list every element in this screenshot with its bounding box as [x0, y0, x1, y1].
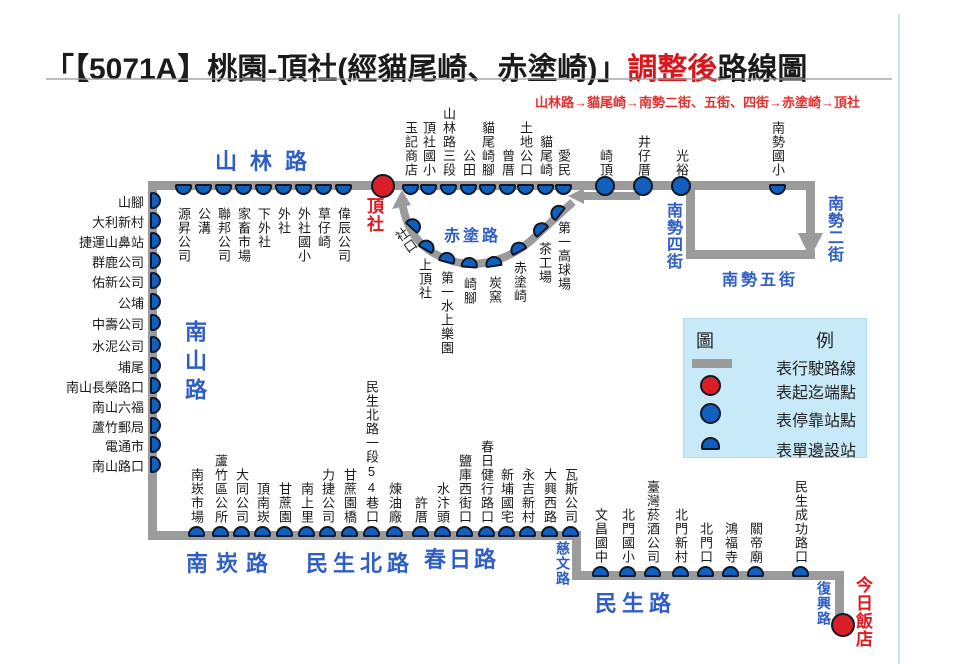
stop-label: 崎腳 — [462, 277, 476, 305]
road-label: 山林路 — [215, 144, 320, 176]
stop-marker — [412, 526, 429, 537]
terminal-marker — [371, 174, 395, 198]
stop-label: 土地公口 — [518, 121, 532, 177]
stop-marker — [276, 526, 293, 537]
stop-label: 新埔國宅 — [499, 468, 513, 524]
stop-marker — [498, 526, 515, 537]
stop-marker — [233, 526, 250, 537]
stop-label: 大興西路 — [542, 468, 556, 524]
stop-marker — [592, 566, 609, 577]
stop-label: 蘆竹郵局 — [92, 417, 144, 436]
terminal-marker — [831, 613, 855, 637]
stop-label: 外社 — [276, 207, 290, 235]
stop-marker — [188, 526, 205, 537]
stop-label: 北門新村 — [673, 508, 687, 564]
stop-label: 源昇公司 — [176, 207, 190, 263]
stop-label: 外社國小 — [296, 207, 310, 263]
stop-label: 上頂社 — [417, 258, 431, 300]
stop-label: 南山六福 — [92, 397, 144, 416]
stop-label: 炭窯 — [487, 276, 501, 304]
stop-label: 公田 — [461, 149, 475, 177]
stop-marker — [672, 566, 689, 577]
stop-label: 公溝 — [196, 207, 210, 235]
stop-label: 瓦斯公司 — [563, 468, 577, 524]
stop-label: 頂南崁 — [255, 482, 269, 524]
stop-label: 第一高球場 — [556, 221, 570, 291]
stop-marker — [541, 526, 558, 537]
stop-label: 甘蔗園 — [277, 482, 291, 524]
road-label: 南勢五街 — [722, 266, 798, 290]
stop-label: 水汴頭 — [435, 482, 449, 524]
stop-label: 貓尾崎 — [538, 135, 552, 177]
stop-marker — [722, 566, 739, 577]
stop-label: 第一水上樂園 — [439, 271, 453, 355]
road-label: 民生北路 — [306, 546, 414, 578]
stop-label: 貓尾崎腳 — [480, 121, 494, 177]
stop-label: 文昌國中 — [593, 508, 607, 564]
stop-label: 下外社 — [256, 207, 270, 249]
stop-label: 關帝廟 — [748, 522, 762, 564]
stop-label: 茶工場 — [537, 242, 551, 284]
stop-label: 崎頂 — [598, 149, 612, 177]
road-label: 南崁路 — [186, 546, 276, 578]
stop-label: 南上里 — [299, 482, 313, 524]
stop-label: 煉油廠 — [387, 482, 401, 524]
stop-label: 北門口 — [698, 522, 712, 564]
stop-label: 鴻福寺 — [723, 522, 737, 564]
stop-marker — [341, 526, 358, 537]
terminal-label: 今日飯店 — [854, 576, 871, 648]
stop-marker — [671, 176, 691, 196]
road-label: 民生路 — [595, 586, 676, 618]
stop-label: 頂社國小 — [421, 121, 435, 177]
stop-marker — [434, 526, 451, 537]
stop-label: 鹽庫西街口 — [457, 454, 471, 524]
stop-label: 山林路三段 — [441, 107, 455, 177]
stop-label: 佑新公司 — [92, 272, 144, 291]
stop-label: 山腳 — [118, 192, 144, 211]
stop-marker — [478, 526, 495, 537]
stop-label: 埔尾 — [118, 357, 144, 376]
stop-marker — [747, 566, 764, 577]
stop-label: 許厝 — [413, 496, 427, 524]
stop-label: 永吉新村 — [520, 468, 534, 524]
stop-marker — [386, 526, 403, 537]
stop-label: 春日健行路口 — [479, 440, 493, 524]
stop-marker — [363, 526, 380, 537]
stop-label: 北門國小 — [620, 508, 634, 564]
stop-marker — [792, 566, 809, 577]
stop-label: 愛民 — [556, 149, 570, 177]
stop-label: 赤塗崎 — [512, 261, 526, 303]
stop-label: 大利新村 — [92, 212, 144, 231]
stop-label: 群鹿公司 — [92, 252, 144, 271]
stop-label: 民生北路一段54巷口 — [364, 380, 378, 524]
stop-label: 南山長榮路口 — [66, 377, 144, 396]
stop-marker — [212, 526, 229, 537]
stop-label: 曾厝 — [500, 149, 514, 177]
stop-marker — [456, 526, 473, 537]
stop-label: 南山路口 — [92, 456, 144, 475]
stop-label: 南勢國小 — [770, 121, 784, 177]
stop-label: 水泥公司 — [92, 336, 144, 355]
stop-label: 中壽公司 — [92, 314, 144, 333]
stop-label: 力捷公司 — [320, 468, 334, 524]
route-map-page: 「【5071A】桃園-頂社(經貓尾崎、赤塗崎)」調整後路線圖 山林路→貓尾崎→南… — [0, 0, 960, 664]
road-label: 南勢二街 — [821, 195, 845, 263]
stop-label: 蘆竹區公所 — [213, 454, 227, 524]
stop-marker — [319, 526, 336, 537]
stop-label: 民生成功路口 — [793, 480, 807, 564]
stop-marker — [519, 526, 536, 537]
stop-marker — [697, 566, 714, 577]
stop-marker — [298, 526, 315, 537]
stop-label: 玉記商店 — [403, 121, 417, 177]
stop-label: 偉辰公司 — [336, 207, 350, 263]
stop-marker — [254, 526, 271, 537]
stop-marker — [644, 566, 661, 577]
stop-marker — [562, 526, 579, 537]
road-label: 春日路 — [424, 542, 499, 574]
stop-marker — [619, 566, 636, 577]
stop-marker — [633, 176, 653, 196]
stop-label: 公埔 — [118, 293, 144, 312]
stop-label: 草仔崎 — [316, 207, 330, 249]
stop-label: 臺灣菸酒公司 — [645, 480, 659, 564]
road-label: 南勢四街 — [660, 202, 684, 270]
terminal-label: 頂社 — [365, 197, 382, 233]
stop-label: 聯邦公司 — [216, 207, 230, 263]
stop-label: 光裕 — [674, 149, 688, 177]
stop-marker — [595, 176, 615, 196]
stop-label: 南崁市場 — [189, 468, 203, 524]
stop-label: 捷運山鼻站 — [79, 232, 144, 251]
road-label: 慈文路 — [553, 541, 573, 586]
road-label: 赤塗路 — [444, 222, 501, 246]
stop-label: 甘蔗園橋 — [342, 468, 356, 524]
stop-label: 井仔厝 — [636, 135, 650, 177]
road-label: 南山路 — [178, 320, 210, 407]
stop-label: 大同公司 — [234, 468, 248, 524]
stop-label: 家畜市場 — [236, 207, 250, 263]
arrow-southbound — [798, 233, 823, 258]
stop-label: 電通市 — [105, 436, 144, 455]
